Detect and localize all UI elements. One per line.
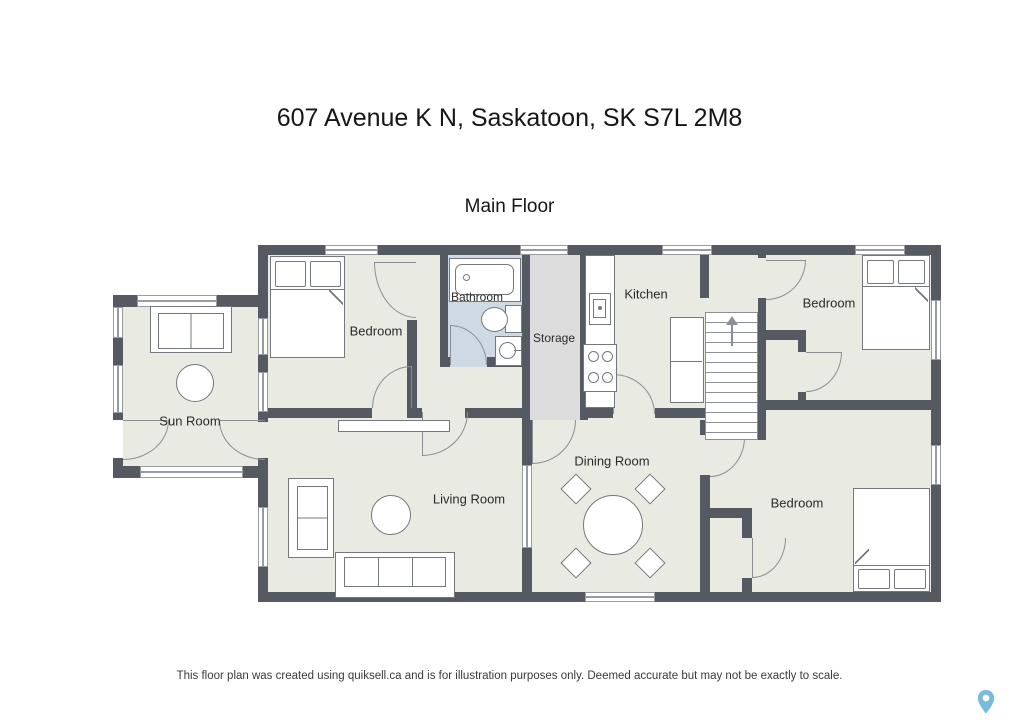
pillow — [858, 569, 890, 589]
stairs-arrow-head-icon — [726, 316, 738, 325]
wall — [258, 245, 325, 255]
wall — [522, 548, 532, 602]
wall — [758, 400, 931, 410]
appliance-knob — [598, 306, 602, 310]
window — [113, 365, 123, 413]
pillow — [310, 261, 341, 287]
wall — [243, 466, 268, 478]
room-label: Bedroom — [771, 496, 824, 511]
blanket-edge — [854, 565, 929, 566]
staircase — [705, 312, 758, 440]
dining-table — [583, 495, 643, 555]
loveseat-cushions — [158, 313, 224, 349]
wall — [258, 245, 268, 318]
room-label: Dining Room — [574, 454, 649, 469]
wall — [798, 392, 806, 402]
burner — [602, 372, 613, 383]
wall — [758, 245, 766, 258]
sofa-cushion-divider — [412, 557, 413, 587]
room-label: Bedroom — [350, 324, 403, 339]
wall — [440, 255, 448, 367]
sink-tap — [514, 350, 522, 351]
fridge-divider — [671, 361, 702, 362]
room-label: Sun Room — [159, 414, 220, 429]
tub-drain — [463, 274, 470, 281]
kitchen-appliance — [589, 293, 611, 325]
window — [258, 372, 268, 412]
loveseat-cushions — [297, 486, 328, 550]
wall — [931, 485, 941, 602]
toilet-bowl — [481, 307, 508, 332]
pillow — [894, 569, 926, 589]
window — [258, 318, 268, 355]
wall — [378, 245, 520, 255]
pillow — [275, 261, 306, 287]
burner — [588, 372, 599, 383]
wall — [258, 567, 268, 602]
wall — [708, 508, 752, 518]
wall — [655, 408, 710, 418]
burner — [588, 351, 599, 362]
wall — [655, 592, 941, 602]
wall — [766, 330, 806, 340]
wall — [700, 475, 710, 602]
loveseat — [150, 306, 232, 353]
coffee-table — [371, 495, 411, 535]
wall — [258, 355, 268, 372]
bed-fold — [329, 289, 343, 305]
wall — [113, 466, 140, 478]
wall — [268, 408, 372, 418]
room-label: Living Room — [433, 492, 505, 507]
window — [931, 445, 941, 485]
stairs-arrow-icon — [731, 324, 733, 346]
window — [855, 245, 905, 255]
wall — [522, 420, 532, 465]
wall — [712, 245, 855, 255]
window — [140, 466, 243, 478]
bed — [862, 255, 930, 350]
cased-opening — [522, 465, 532, 548]
room-label: Storage — [533, 331, 575, 345]
room-label: Bedroom — [803, 296, 856, 311]
disclaimer-text: This floor plan was created using quikse… — [0, 670, 1019, 682]
room-label: Bathroom — [451, 290, 503, 304]
wall — [412, 408, 422, 418]
console-table — [338, 420, 450, 432]
floor-plan: Bedroom Bathroom Storage Kitchen Bedroom… — [0, 0, 1019, 720]
loveseat — [288, 478, 334, 558]
refrigerator — [670, 317, 704, 403]
wall — [931, 360, 941, 445]
window — [662, 245, 712, 255]
stove-icon — [583, 344, 617, 392]
window — [258, 507, 268, 567]
wall — [798, 340, 806, 352]
wall — [440, 357, 450, 367]
bed-fold — [915, 287, 928, 302]
room-label: Kitchen — [624, 287, 667, 302]
sofa — [335, 552, 455, 598]
wall — [742, 518, 752, 538]
wall — [522, 245, 530, 420]
wall — [585, 408, 613, 418]
window — [113, 307, 123, 338]
wall — [758, 298, 766, 440]
pillow — [867, 260, 894, 284]
bed — [270, 256, 345, 358]
bed-fold — [855, 549, 869, 564]
burner — [602, 351, 613, 362]
window — [931, 300, 941, 360]
wall — [931, 245, 941, 300]
map-pin-icon — [976, 689, 996, 715]
wall — [742, 578, 752, 592]
round-table — [176, 364, 214, 402]
wall — [113, 413, 123, 420]
window — [585, 592, 655, 602]
wall — [113, 338, 123, 365]
wall — [465, 408, 530, 418]
window — [520, 245, 568, 255]
window — [325, 245, 378, 255]
sofa-cushions — [344, 557, 446, 587]
sink-icon — [495, 336, 522, 366]
pillow — [898, 260, 925, 284]
bed — [853, 488, 930, 592]
sofa-cushion-divider — [378, 557, 379, 587]
wall — [113, 295, 123, 307]
